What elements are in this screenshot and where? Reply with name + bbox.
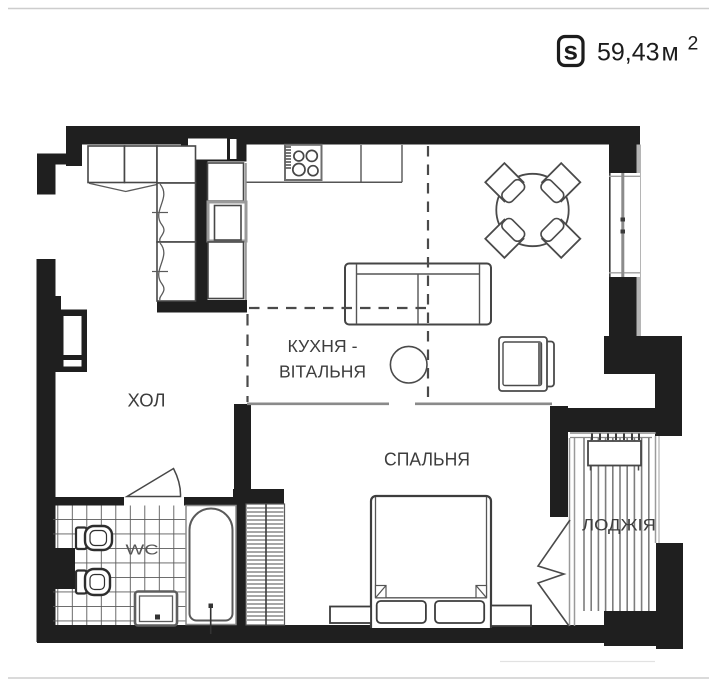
- svg-text:ЛОДЖІЯ: ЛОДЖІЯ: [582, 516, 656, 535]
- svg-text:СПАЛЬНЯ: СПАЛЬНЯ: [384, 450, 470, 470]
- svg-text:s: s: [563, 36, 577, 66]
- svg-text:КУХНЯ -: КУХНЯ -: [288, 336, 358, 356]
- svg-text:WC: WC: [126, 542, 159, 559]
- svg-text:59,43 м: 59,43 м: [597, 39, 679, 67]
- svg-text:ВІТАЛЬНЯ: ВІТАЛЬНЯ: [279, 362, 366, 382]
- svg-text:2: 2: [688, 33, 699, 55]
- svg-text:ХОЛ: ХОЛ: [128, 391, 166, 411]
